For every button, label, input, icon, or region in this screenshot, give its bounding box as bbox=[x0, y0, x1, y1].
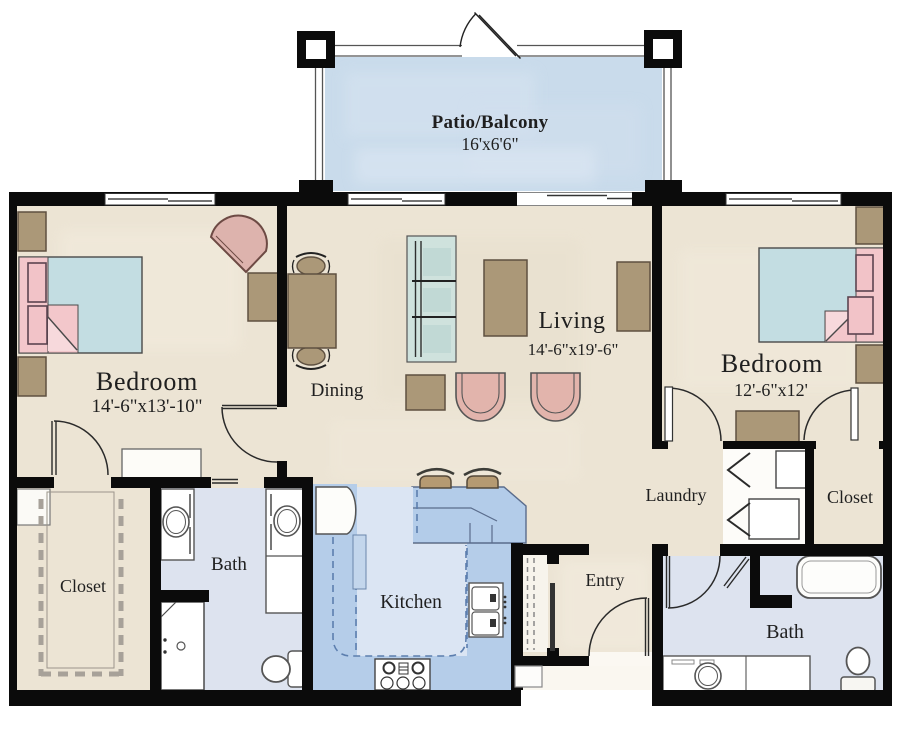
svg-text:16'x6'6": 16'x6'6" bbox=[461, 134, 518, 154]
svg-text:14'-6"x13'-10": 14'-6"x13'-10" bbox=[91, 396, 202, 417]
svg-text:Entry: Entry bbox=[586, 570, 625, 590]
svg-text:Bath: Bath bbox=[766, 621, 804, 643]
svg-text:Bedroom: Bedroom bbox=[721, 349, 823, 378]
svg-text:Laundry: Laundry bbox=[646, 485, 707, 505]
svg-text:Bath: Bath bbox=[211, 554, 247, 575]
svg-text:14'-6"x19'-6": 14'-6"x19'-6" bbox=[528, 340, 619, 359]
svg-text:Patio/Balcony: Patio/Balcony bbox=[432, 112, 549, 133]
svg-text:Kitchen: Kitchen bbox=[380, 592, 442, 613]
svg-text:Bedroom: Bedroom bbox=[96, 367, 198, 396]
svg-text:Closet: Closet bbox=[60, 576, 106, 596]
svg-text:Closet: Closet bbox=[827, 487, 873, 507]
svg-text:Dining: Dining bbox=[311, 380, 364, 401]
svg-text:Living: Living bbox=[539, 308, 606, 334]
svg-text:12'-6"x12': 12'-6"x12' bbox=[734, 380, 808, 400]
